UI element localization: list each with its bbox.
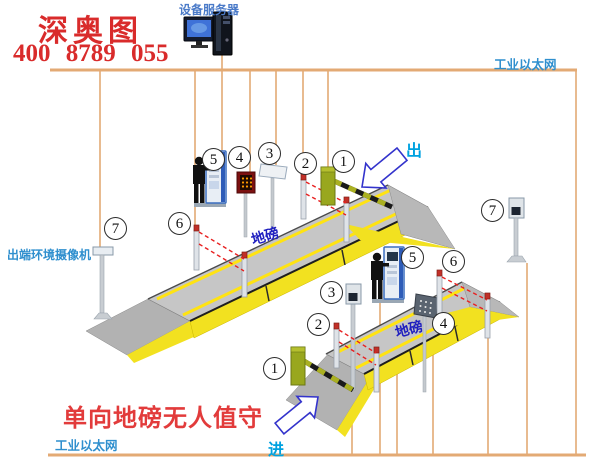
server-icon — [184, 12, 232, 55]
exit-env-camera-icon — [93, 247, 113, 319]
marker-exit-env-camera: 7 — [104, 217, 127, 240]
entry-kiosk-operator-icon — [371, 247, 404, 303]
marker-exit-led-sign: 4 — [228, 146, 251, 169]
marker-exit-ir-rear: 6 — [168, 212, 191, 235]
marker-exit-kiosk: 5 — [202, 148, 225, 171]
exit-led-sign-icon — [237, 172, 255, 237]
marker-entry-barrier: 1 — [263, 357, 286, 380]
exit-flow-label: 出 — [406, 137, 422, 161]
ethernet-top-label: 工业以太网 — [494, 54, 557, 73]
marker-exit-ir-front: 2 — [294, 152, 317, 175]
marker-entry-camera: 3 — [320, 281, 343, 304]
exit-arrow-icon — [362, 148, 407, 188]
marker-entry-env-camera: 7 — [481, 199, 504, 222]
marker-entry-ir-rear: 6 — [442, 250, 465, 273]
marker-exit-barrier: 1 — [332, 150, 355, 173]
marker-entry-kiosk: 5 — [401, 246, 424, 269]
marker-entry-dot-display: 4 — [432, 312, 455, 335]
exit-lcd-panel-icon — [259, 164, 287, 231]
entry-env-camera-icon — [507, 198, 526, 262]
server-label: 设备服务器 — [179, 1, 239, 18]
ethernet-bottom-label: 工业以太网 — [55, 435, 118, 454]
caption-text: 单向地磅无人值守 — [63, 398, 263, 433]
marker-exit-lcd-panel: 3 — [258, 142, 281, 165]
phone-number: 400 8789 055 — [13, 40, 169, 68]
exit-camera-label: 出端环境摄像机 — [7, 246, 91, 263]
marker-entry-ir-front: 2 — [307, 313, 330, 336]
entry-flow-label: 进 — [268, 436, 284, 460]
diagram-canvas: 深奥图 400 8789 055 设备服务器 工业以太网 工业以太网 出端环境摄… — [0, 0, 600, 474]
weighbridge-bottom — [286, 282, 519, 437]
